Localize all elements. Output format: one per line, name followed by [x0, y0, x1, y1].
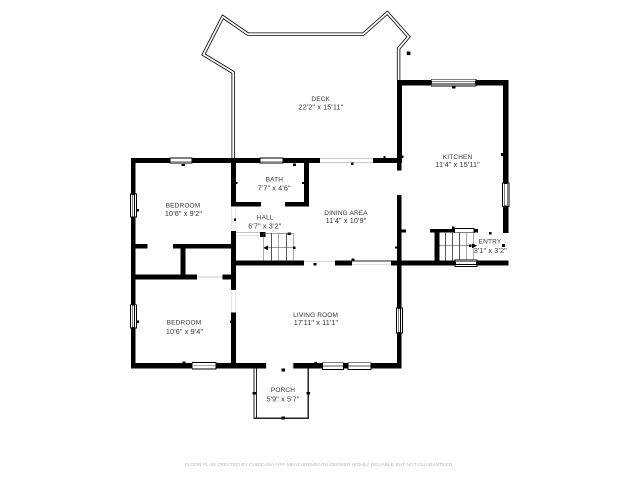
svg-text:10'6" x 9'2": 10'6" x 9'2"	[165, 209, 202, 218]
svg-text:PORCH: PORCH	[271, 387, 295, 394]
svg-text:11'4" x 10'9": 11'4" x 10'9"	[326, 216, 367, 225]
svg-text:5'9" x 5'7": 5'9" x 5'7"	[266, 395, 299, 404]
svg-text:10'6" x 9'4": 10'6" x 9'4"	[166, 327, 203, 336]
svg-text:17'11" x 11'1": 17'11" x 11'1"	[294, 318, 339, 327]
svg-text:7'7" x 4'6": 7'7" x 4'6"	[258, 184, 291, 193]
svg-text:22'2" x 15'11": 22'2" x 15'11"	[298, 102, 343, 111]
svg-text:FLOOR PLAN CREATED BY CUBICASA: FLOOR PLAN CREATED BY CUBICASA APP. MEAS…	[185, 462, 454, 468]
svg-text:6'7" x 3'2": 6'7" x 3'2"	[248, 221, 281, 230]
svg-text:11'4" x 15'11": 11'4" x 15'11"	[435, 160, 480, 169]
svg-text:BEDROOM: BEDROOM	[167, 320, 202, 327]
svg-text:3'1" x 3'2": 3'1" x 3'2"	[474, 246, 507, 255]
svg-text:ENTRY: ENTRY	[479, 238, 502, 245]
